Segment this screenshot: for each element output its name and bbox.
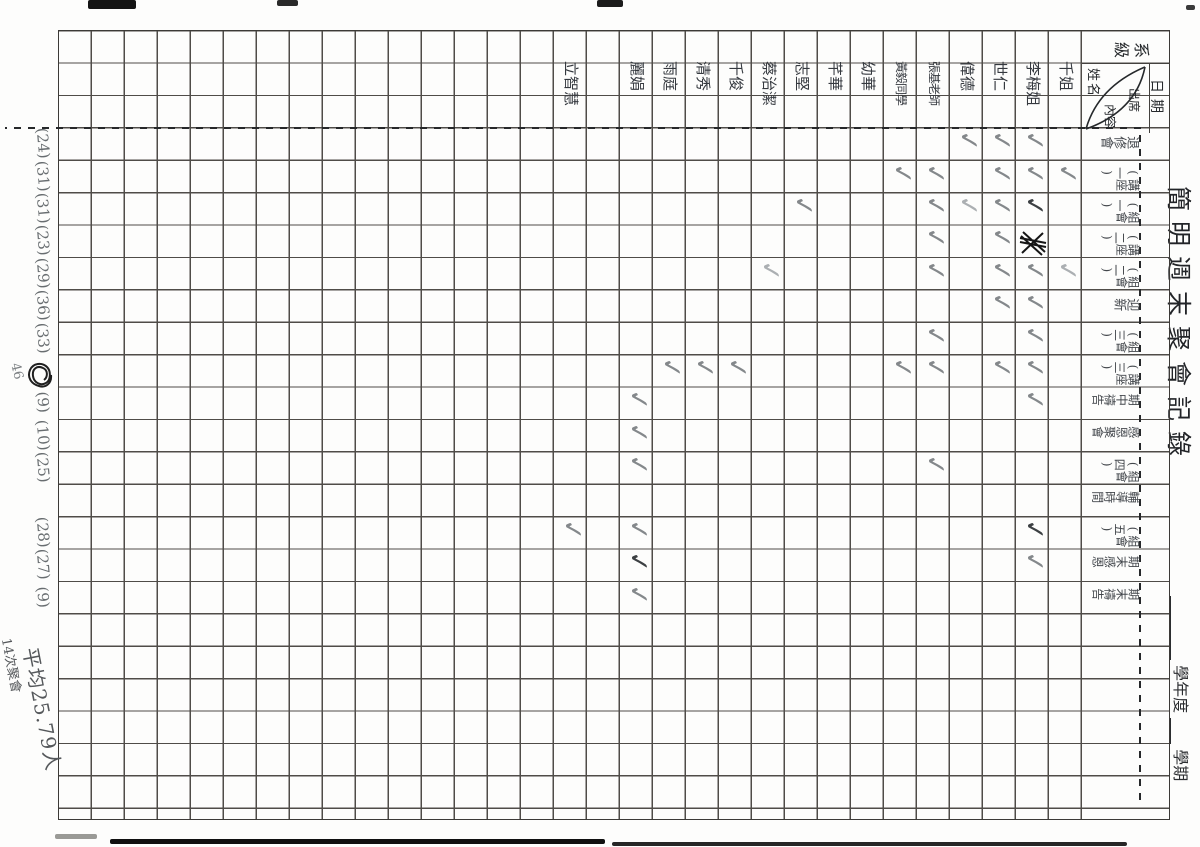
event-label: 組會(一)	[1082, 199, 1140, 223]
check-mark: ✓	[1020, 518, 1048, 542]
check-mark: ✓	[624, 420, 652, 444]
check-mark: ✓	[624, 518, 652, 542]
check-mark: ✓	[1020, 550, 1048, 574]
event-total: (9)	[33, 385, 54, 421]
attendance-sheet: 簡明週末聚會記錄 學年度 學期 系級 日期 出席 內容 姓名 退修會(24)講座…	[0, 0, 1200, 847]
total-note: 46	[7, 361, 26, 381]
marks-layer: 退修會(24)講座(一)(31)組會(一)(31)講座(二)(23)組會(二)(…	[0, 0, 1200, 847]
person-name: 麗娟	[620, 61, 653, 127]
scan-artifact	[597, 0, 623, 7]
event-label: 組會(五)	[1082, 523, 1140, 547]
scan-artifact	[277, 0, 298, 6]
person-name: 偉德	[950, 61, 983, 127]
check-mark: ✓	[987, 129, 1015, 153]
event-total: (9)	[33, 579, 54, 615]
check-mark: ✓	[723, 356, 751, 380]
event-total: (33)	[33, 320, 54, 356]
check-mark: ✓	[1020, 161, 1048, 185]
check-mark: ✓	[987, 258, 1015, 282]
check-mark: ✓	[954, 129, 982, 153]
check-mark: ✓	[1020, 388, 1048, 412]
person-name: 李梅姐	[1016, 61, 1049, 127]
check-mark: ✓	[1020, 258, 1048, 282]
check-mark: ✓	[1020, 129, 1048, 153]
event-total: (29)	[33, 255, 54, 291]
check-mark: ✓	[1020, 291, 1048, 315]
event-total: (24)	[33, 125, 54, 161]
scan-artifact	[110, 839, 605, 844]
check-mark: ✓	[624, 388, 652, 412]
event-label: 組會(三)	[1082, 329, 1140, 353]
scan-artifact	[55, 834, 97, 839]
scan-artifact	[1186, 5, 1195, 10]
person-name: 志堅	[785, 61, 818, 127]
check-mark: ✓	[921, 323, 949, 347]
check-mark: ✓	[1053, 258, 1081, 282]
scribbled-check	[1018, 227, 1048, 259]
check-mark: ✓	[756, 258, 784, 282]
person-name: 立智慧	[554, 61, 587, 127]
event-total: (28)	[33, 514, 54, 550]
check-mark: ✓	[987, 226, 1015, 250]
check-mark: ✓	[987, 194, 1015, 218]
event-label: 感恩聚會	[1082, 426, 1140, 438]
event-label: 期中禱告	[1082, 393, 1140, 405]
scan-artifact	[88, 0, 136, 9]
check-mark: ✓	[888, 356, 916, 380]
event-total: (31)	[33, 158, 54, 194]
person-name: 世仁	[983, 61, 1016, 127]
check-mark: ✓	[921, 226, 949, 250]
person-name: 千姐	[1049, 61, 1082, 127]
check-mark: ✓	[624, 582, 652, 606]
check-mark: ✓	[987, 291, 1015, 315]
event-label: 期末禱告	[1082, 588, 1140, 600]
scan-artifact	[612, 842, 1127, 846]
check-mark: ✓	[558, 518, 586, 542]
person-name: 蔡治潔	[752, 61, 785, 127]
person-name: 芊華	[818, 61, 851, 127]
event-total: (27)	[33, 547, 54, 583]
check-mark: ✓	[624, 453, 652, 477]
check-mark: ✓	[921, 161, 949, 185]
check-mark: ✓	[921, 453, 949, 477]
check-mark: ✓	[921, 258, 949, 282]
event-label: 講座(二)	[1082, 231, 1140, 255]
event-label: 期末感恩	[1082, 555, 1140, 567]
event-label: 退修會	[1082, 134, 1140, 147]
event-label: 組會(二)	[1082, 264, 1140, 288]
check-mark: ✓	[624, 550, 652, 574]
person-name: 清秀	[686, 61, 719, 127]
event-total: (36)	[33, 287, 54, 323]
event-label: 組會(四)	[1082, 458, 1140, 482]
check-mark: ✓	[987, 161, 1015, 185]
check-mark: ✓	[954, 194, 982, 218]
check-mark: ✓	[921, 356, 949, 380]
check-mark: ✓	[1020, 194, 1048, 218]
person-name: 雨庭	[653, 61, 686, 127]
event-label: 講座(一)	[1082, 167, 1140, 191]
event-label: 輔導時間	[1082, 491, 1140, 503]
check-mark: ✓	[1053, 161, 1081, 185]
check-mark: ✓	[1020, 323, 1048, 347]
event-total: (31)	[33, 190, 54, 226]
scanned-page: 簡明週末聚會記錄 學年度 學期 系級 日期 出席 內容 姓名 退修會(24)講座…	[0, 0, 1200, 847]
person-name: 幼華	[851, 61, 884, 127]
check-mark: ✓	[888, 161, 916, 185]
check-mark: ✓	[690, 356, 718, 380]
check-mark: ✓	[987, 356, 1015, 380]
event-total: (23)	[33, 223, 54, 259]
event-total: (25)	[33, 449, 54, 485]
person-name: 黃毅同學	[884, 61, 917, 127]
event-label: 講座(三)	[1082, 361, 1140, 385]
event-total: (10)	[33, 417, 54, 453]
person-name: 張基老師	[917, 61, 950, 127]
event-label: 迎新	[1082, 296, 1140, 309]
check-mark: ✓	[921, 194, 949, 218]
check-mark: ✓	[789, 194, 817, 218]
person-name: 千俊	[719, 61, 752, 127]
check-mark: ✓	[1020, 356, 1048, 380]
check-mark: ✓	[657, 356, 685, 380]
